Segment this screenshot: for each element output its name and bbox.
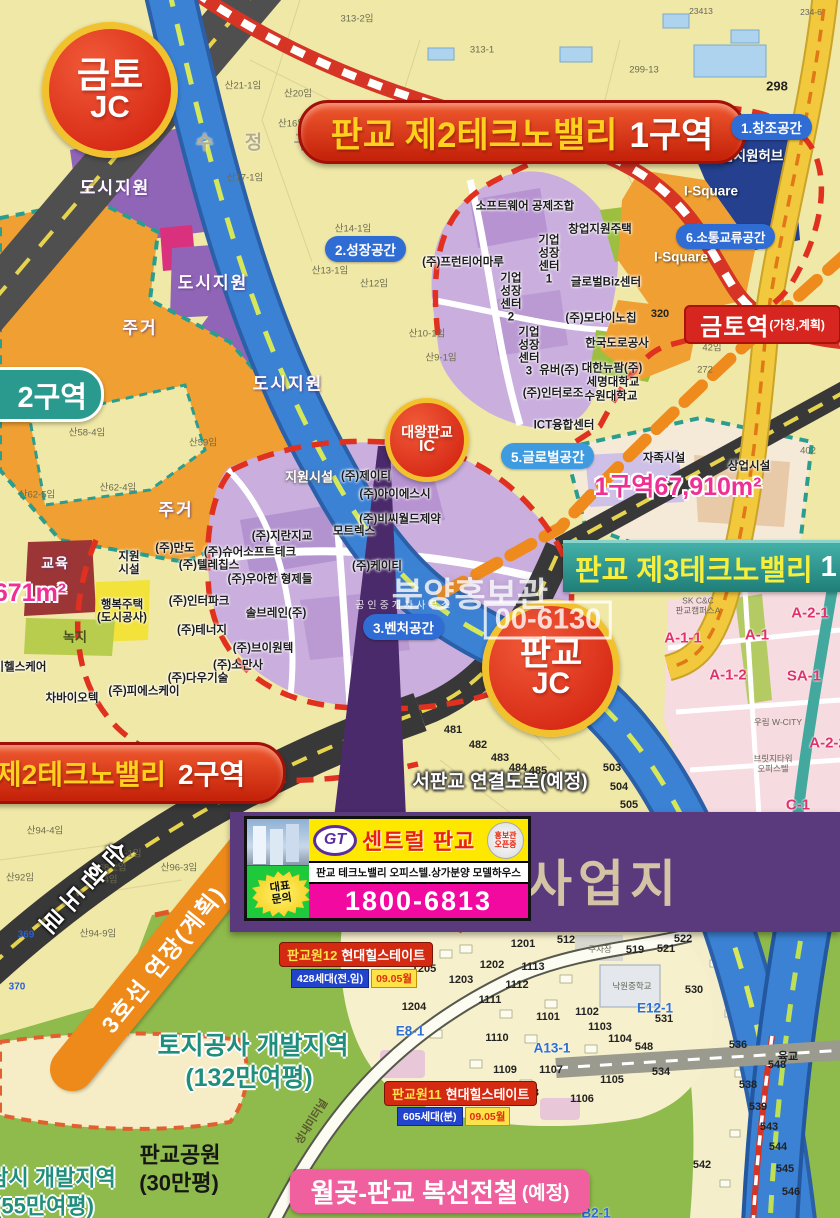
- ad-left-panel: 대표 문의: [247, 819, 309, 918]
- space-badge-3: 3.벤처공간: [363, 614, 444, 640]
- space-badge-5: 5.글로벌공간: [501, 443, 594, 469]
- ad-description: 판교 테크노밸리 오피스텔.상가분양 모델하우스: [309, 861, 528, 884]
- zone2-badge: 2구역: [0, 367, 104, 422]
- geumto-jc-badge: 금토 JC: [42, 22, 178, 158]
- site-label: 사업지: [526, 844, 682, 916]
- banner-tv2-zone1: 판교 제2테크노밸리 1구역: [298, 100, 746, 164]
- apartment-badge-pg12: 판교원12 현대힐스테이트: [279, 942, 433, 967]
- ad-main-panel: GT 센트럴 판교 홍보관 오픈중 판교 테크노밸리 오피스텔.상가분양 모델하…: [309, 819, 528, 918]
- contact-label-2: 문의: [271, 893, 293, 907]
- watermark-office: 공인중개사사무소: [355, 597, 453, 612]
- geumto-station-banner: 금토역 (가칭,계획): [684, 305, 840, 344]
- apartment-info-pg12: 428세대(전.임) 09.05월: [291, 969, 417, 988]
- map-poster: 지원시설(주)제이티(주)아이에스시(주)비씨월드제약모트렉스(주)지란지교(주…: [0, 0, 840, 1218]
- space-badge-6: 6.소통교류공간: [676, 224, 775, 249]
- apartment-info-pg11: 605세대(분) 09.05월: [397, 1107, 510, 1126]
- ad-building-photo: [247, 819, 309, 866]
- banner-tv3: 판교 제3테크노밸리 1: [563, 540, 840, 592]
- zone-greenbelt: [24, 618, 115, 656]
- ad-phone: 1800-6813: [309, 884, 528, 918]
- ad-banner: 대표 문의 GT 센트럴 판교 홍보관 오픈중 판교 테크노밸리 오피스텔.상가…: [244, 816, 531, 921]
- contact-starburst: 대표 문의: [249, 867, 313, 921]
- ad-header-row: GT 센트럴 판교 홍보관 오픈중: [309, 819, 528, 861]
- apartment-badge-pg11: 판교원11 현대힐스테이트: [384, 1081, 537, 1106]
- watermark-phone: 00-6130: [484, 601, 612, 640]
- gt-logo: GT: [313, 825, 357, 856]
- space-badge-2: 2.성장공간: [325, 236, 406, 262]
- ad-brand: 센트럴 판교: [362, 824, 475, 856]
- banner-tv2-zone2: 제2테크노밸리 2구역: [0, 742, 286, 804]
- daewang-pangyo-ic-badge: 대왕판교 IC: [385, 398, 469, 482]
- open-ribbon: 홍보관 오픈중: [487, 822, 524, 859]
- banner-wolgot-line: 월곶-판교 복선전철 (예정): [290, 1169, 590, 1213]
- space-badge-1: 1.창조공간: [731, 114, 812, 140]
